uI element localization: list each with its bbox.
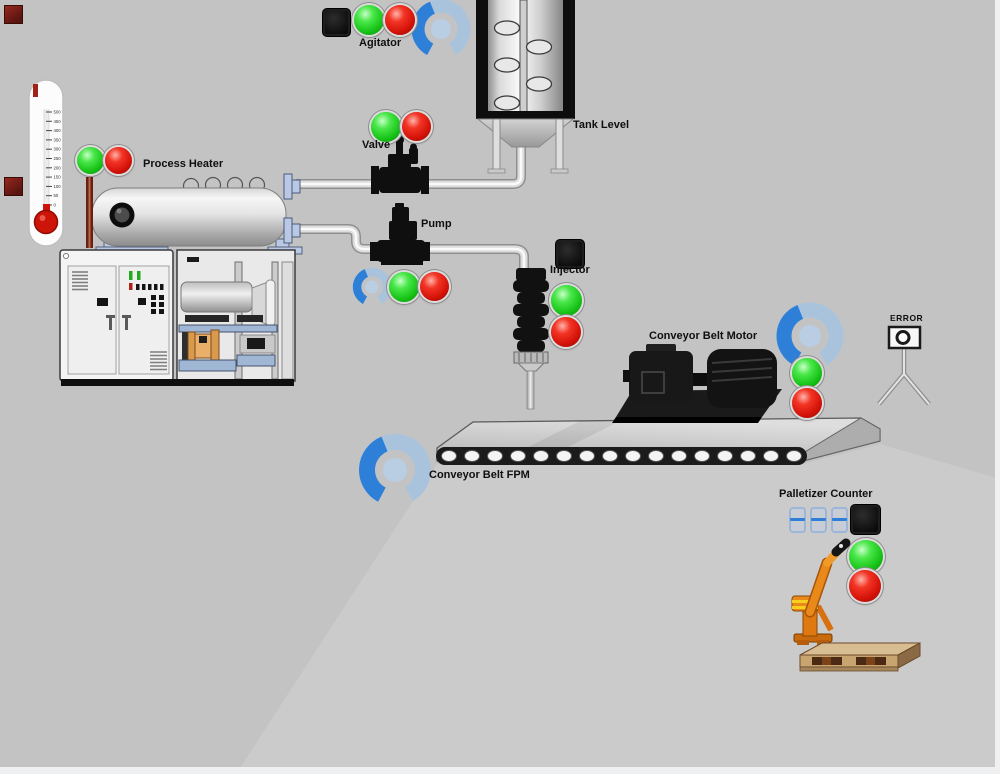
mixing-tank-graphic: [476, 0, 575, 173]
conveyor-belt-graphic: [436, 418, 880, 465]
agitator-reset-button[interactable]: [322, 8, 351, 37]
counter-digit: [789, 507, 806, 533]
compressor-cylinder: [181, 282, 252, 312]
process-heater-start-light[interactable]: [77, 147, 104, 174]
corner-alarm-button-mid[interactable]: [4, 177, 23, 196]
window-edge-right: [995, 0, 1000, 774]
tank-leg: [556, 119, 563, 171]
tank-level-label: Tank Level: [573, 119, 629, 131]
pump-graphic: [370, 203, 430, 265]
agitator-gauge: [418, 6, 464, 49]
conveyor-motor-gauge: [784, 310, 836, 359]
process-graphics: 500 450 400 350 300 250 200 150 100 50 0: [0, 0, 1000, 774]
conveyor-motor-start-light[interactable]: [792, 358, 822, 388]
tick-label: 150: [54, 175, 62, 180]
palletizer-stop-light[interactable]: [849, 570, 881, 602]
tick-label: 250: [54, 156, 62, 161]
thermometer: 500 450 400 350 300 250 200 150 100 50 0: [29, 80, 63, 246]
counter-digit: [810, 507, 827, 533]
palletizer-counter-display: [789, 507, 848, 533]
hmi-process-screen: 500 450 400 350 300 250 200 150 100 50 0: [0, 0, 1000, 774]
conveyor-motor-graphic: [612, 344, 782, 423]
heater-nozzles: [284, 174, 300, 243]
conveyor-motor-stop-light[interactable]: [792, 388, 822, 418]
camera-lens: [897, 332, 909, 344]
injector-nozzle-tube: [527, 371, 534, 409]
pump-label: Pump: [421, 218, 452, 230]
process-heater-vessel: [86, 174, 302, 254]
tick-label: 100: [54, 184, 62, 189]
pump-gauge: [357, 272, 387, 300]
injector-start-light[interactable]: [551, 285, 582, 316]
palletizer-counter-label: Palletizer Counter: [779, 488, 873, 500]
tick-label: 50: [54, 193, 59, 198]
heater-skid-cabinet: [60, 250, 295, 386]
injector-stop-light[interactable]: [551, 317, 581, 347]
valve-label: Valve: [362, 139, 390, 151]
error-camera-graphic: [879, 327, 929, 404]
palletizer-reset-button[interactable]: [850, 504, 881, 535]
tick-label: 200: [54, 165, 62, 170]
process-heater-label: Process Heater: [143, 158, 223, 170]
tick-label: 450: [54, 119, 62, 124]
tick-label: 400: [54, 128, 62, 133]
thermometer-top-mark: [33, 84, 38, 97]
process-heater-stop-light[interactable]: [105, 147, 132, 174]
palletizer-start-light[interactable]: [849, 540, 883, 573]
agitator-label: Agitator: [359, 37, 401, 49]
injector-label: Injector: [550, 264, 590, 276]
window-edge-bottom: [0, 767, 1000, 774]
valve-close-light[interactable]: [402, 112, 431, 141]
floor-shading: [240, 444, 1000, 768]
tank-leg: [493, 119, 500, 171]
conveyor-fpm-gauge: [367, 442, 423, 495]
tick-label: 300: [54, 147, 62, 152]
tick-label: 500: [54, 110, 62, 115]
valve-open-light[interactable]: [371, 112, 401, 142]
corner-alarm-button-top[interactable]: [4, 5, 23, 24]
conveyor-belt-fpm-label: Conveyor Belt FPM: [429, 469, 530, 481]
error-label: ERROR: [890, 313, 923, 323]
thermometer-bulb: [35, 211, 58, 234]
conveyor-belt-motor-label: Conveyor Belt Motor: [649, 330, 757, 342]
tick-label: 350: [54, 137, 62, 142]
pump-stop-light[interactable]: [420, 272, 449, 301]
injector-graphic: [513, 268, 549, 409]
pump-start-light[interactable]: [389, 272, 419, 302]
agitator-shaft: [520, 0, 527, 112]
agitator-start-light[interactable]: [354, 5, 384, 35]
agitator-stop-light[interactable]: [385, 5, 415, 35]
counter-digit: [831, 507, 848, 533]
